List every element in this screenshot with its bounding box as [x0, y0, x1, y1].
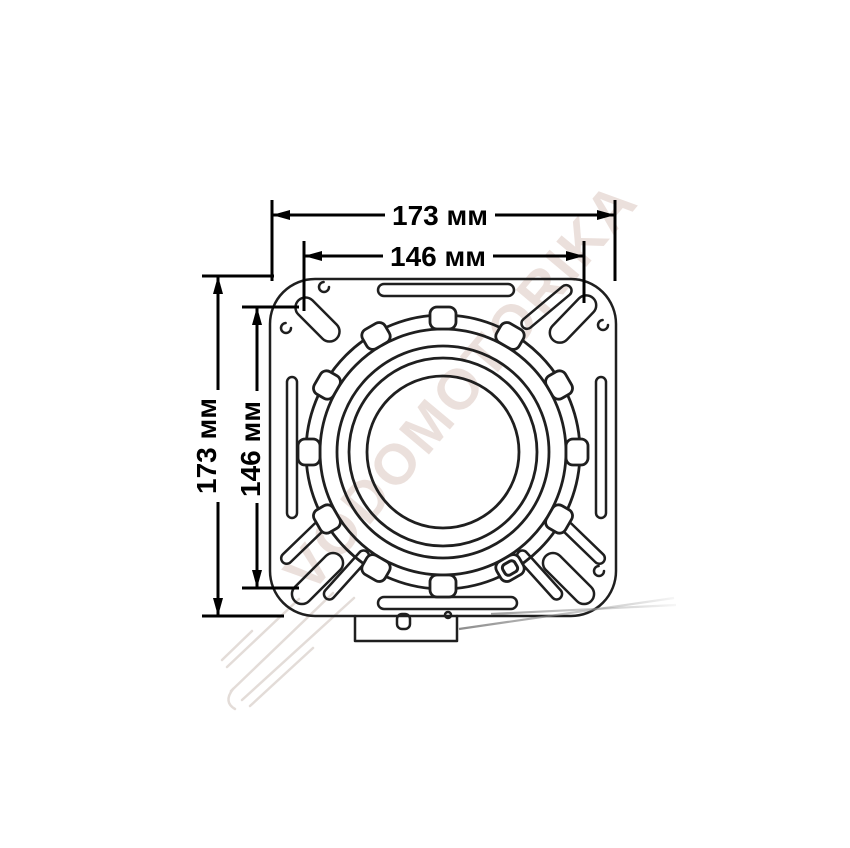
arrowhead — [213, 276, 223, 294]
hole-mark — [598, 320, 608, 330]
bearing-tab — [359, 320, 393, 352]
dim-label-top-inner: 146 мм — [390, 241, 486, 272]
bearing-tab-lock — [493, 552, 527, 584]
hole-mark — [594, 566, 604, 576]
bearing-tab — [298, 439, 320, 465]
dim-label-left-inner: 146 мм — [235, 401, 266, 497]
hole-mark — [319, 282, 329, 292]
arrowhead — [252, 307, 262, 325]
arrowhead — [272, 210, 290, 220]
technical-drawing-canvas: VODOMOTORIKA — [0, 0, 850, 848]
bearing-tab — [359, 552, 393, 584]
bearing-tab — [566, 439, 588, 465]
slot-right-edge — [596, 377, 606, 518]
bearing-tab — [543, 368, 575, 402]
release-handle — [459, 598, 676, 629]
drawing-svg: VODOMOTORIKA — [0, 0, 850, 848]
slot-top-edge — [378, 284, 514, 296]
bearing-tab — [430, 307, 456, 329]
hole-mark — [281, 323, 291, 333]
dim-label-left-outer: 173 мм — [191, 398, 222, 494]
plate-drawing — [270, 279, 616, 641]
arrowhead — [304, 251, 322, 261]
dim-label-top-outer: 173 мм — [392, 200, 488, 231]
slot-bottom-edge — [378, 597, 517, 609]
watermark-feather-graphic — [222, 593, 354, 709]
arrowhead — [252, 570, 262, 588]
bearing-tab — [543, 502, 575, 536]
bearing-tab — [430, 575, 456, 597]
slot-left-edge — [287, 377, 297, 518]
handle-upper-line — [491, 605, 676, 614]
bearing-tab — [311, 368, 343, 402]
arrowhead — [213, 598, 223, 616]
slot-corner-top-left — [291, 293, 343, 345]
